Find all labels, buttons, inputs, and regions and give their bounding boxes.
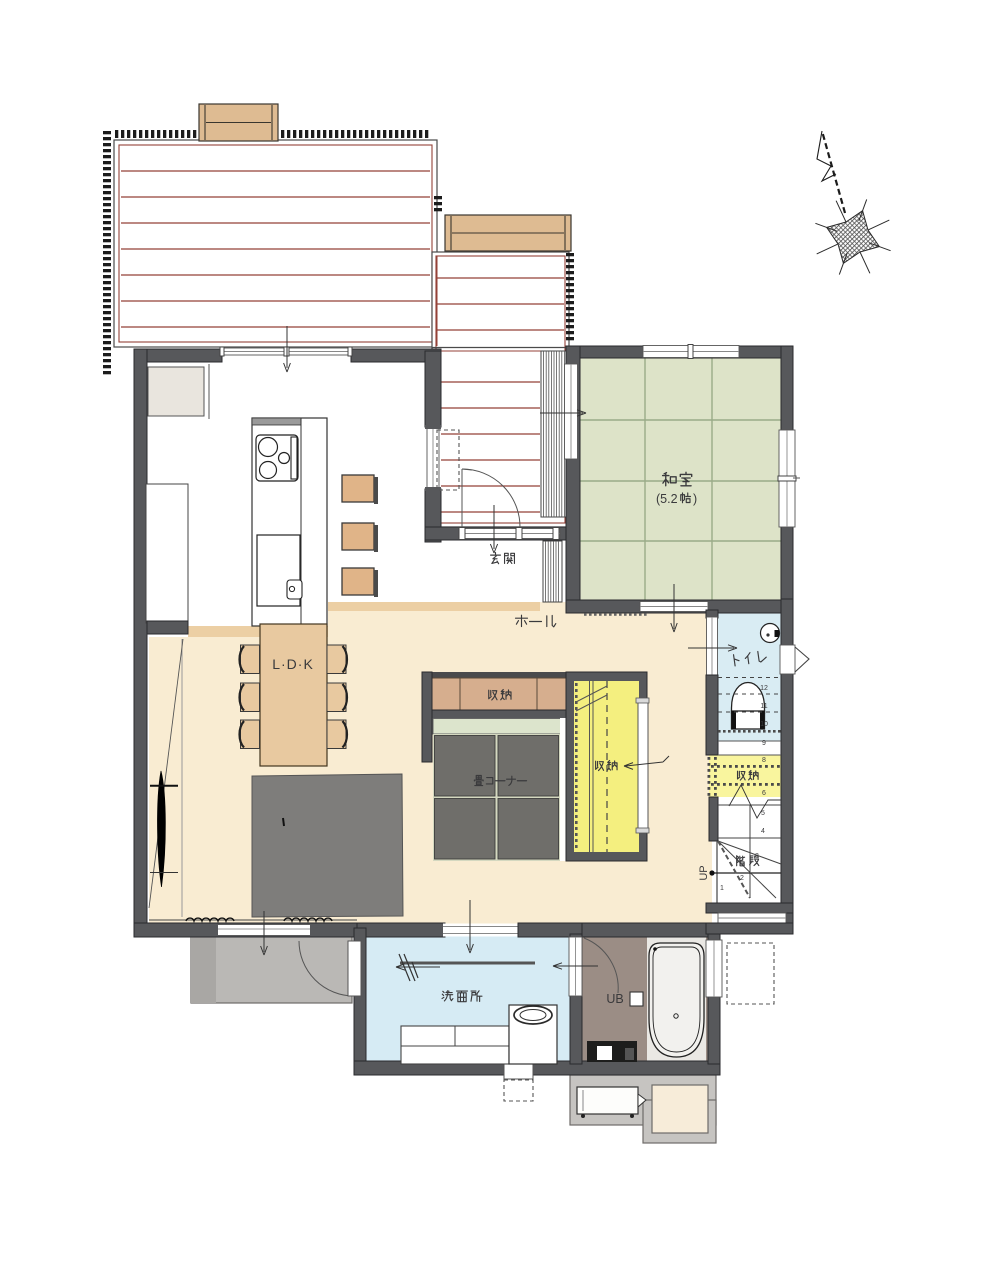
svg-text:12: 12 xyxy=(760,685,768,692)
svg-text:UB: UB xyxy=(606,992,623,1006)
svg-text:8: 8 xyxy=(762,757,766,764)
svg-text:2: 2 xyxy=(740,875,744,882)
svg-text:9: 9 xyxy=(762,740,766,747)
svg-text:UP: UP xyxy=(698,865,710,880)
svg-text:): ) xyxy=(693,492,697,506)
svg-text:10: 10 xyxy=(760,721,768,728)
svg-text:6: 6 xyxy=(762,790,766,797)
svg-text:1: 1 xyxy=(720,885,724,892)
svg-text:11: 11 xyxy=(760,703,767,710)
svg-text:(5.2: (5.2 xyxy=(656,492,678,506)
svg-text:L·D·K: L·D·K xyxy=(272,656,314,672)
svg-text:4: 4 xyxy=(761,828,765,835)
svg-text:5: 5 xyxy=(761,810,765,817)
